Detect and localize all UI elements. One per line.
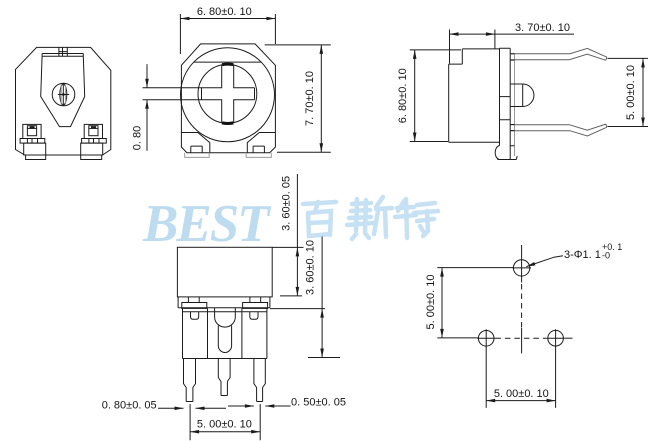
svg-text:6. 80±0. 10: 6. 80±0. 10: [197, 6, 252, 18]
svg-text:5. 00±0. 10: 5. 00±0. 10: [625, 65, 637, 120]
svg-text:BEST: BEST: [142, 195, 272, 253]
svg-text:-0: -0: [602, 251, 610, 261]
svg-text:3. 70±0. 10: 3. 70±0. 10: [515, 22, 570, 34]
svg-text:5. 00±0. 10: 5. 00±0. 10: [494, 388, 549, 400]
svg-text:7. 70±0. 10: 7. 70±0. 10: [304, 71, 316, 126]
svg-text:5. 00±0. 10: 5. 00±0. 10: [197, 419, 252, 431]
svg-text:0. 80±0. 05: 0. 80±0. 05: [102, 399, 157, 411]
svg-text:3. 60±0. 05: 3. 60±0. 05: [281, 176, 293, 231]
svg-text:6. 80±0. 10: 6. 80±0. 10: [397, 68, 409, 123]
svg-text:3. 60±0. 10: 3. 60±0. 10: [304, 240, 316, 295]
svg-text:0. 80: 0. 80: [132, 126, 144, 150]
svg-text:0. 50±0. 05: 0. 50±0. 05: [291, 396, 346, 408]
svg-text:3-Φ1. 1: 3-Φ1. 1: [564, 249, 601, 261]
svg-text:5. 00±0. 10: 5. 00±0. 10: [425, 275, 437, 330]
